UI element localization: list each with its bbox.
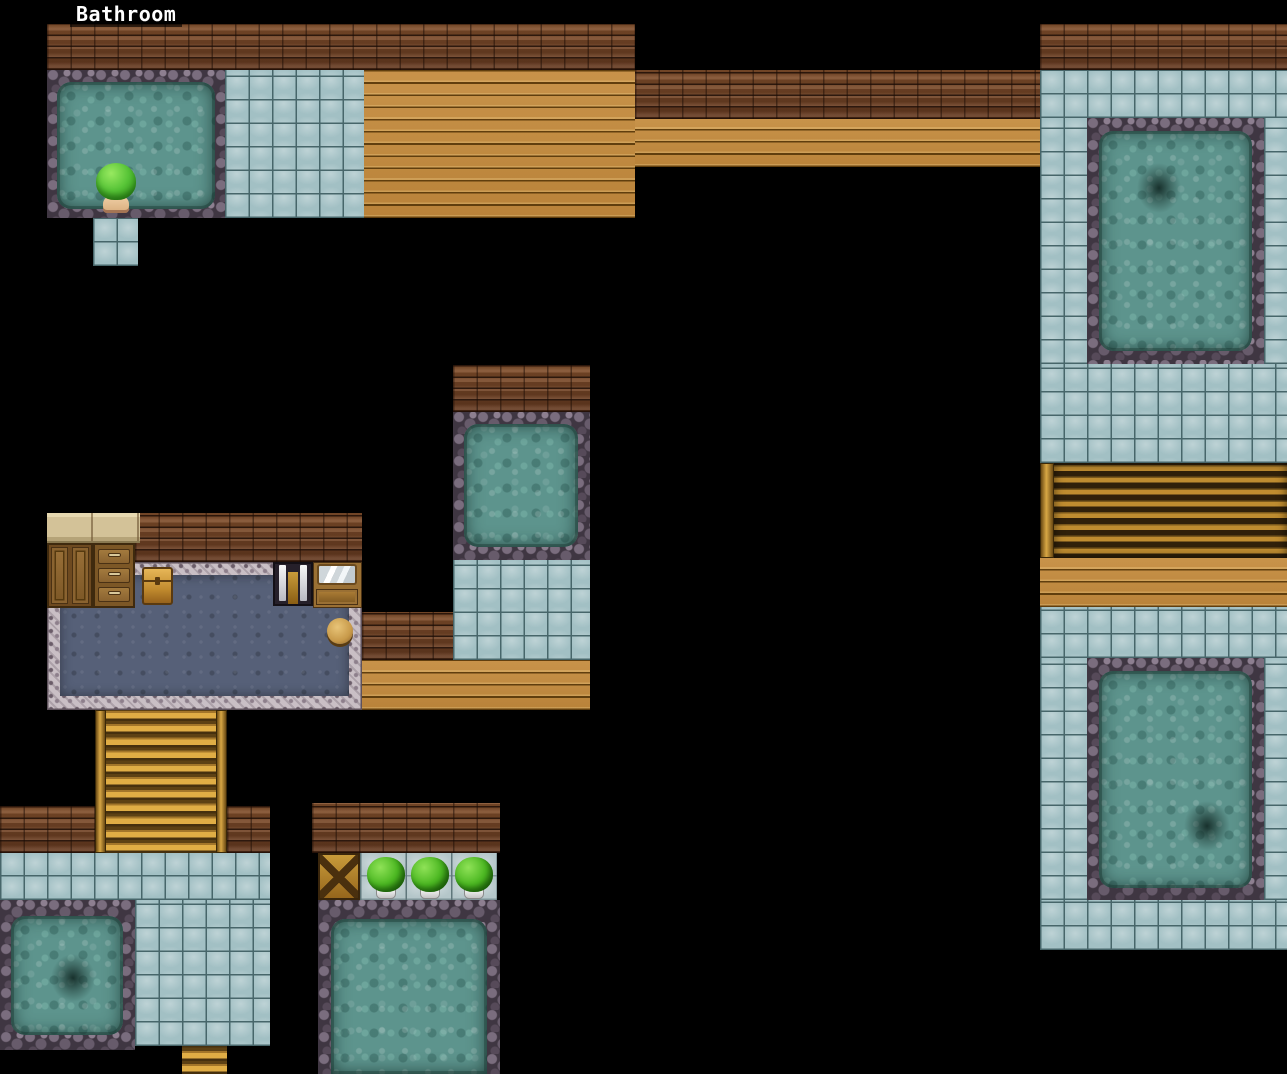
- tile-floor-bottom-left-right: [135, 900, 270, 1046]
- drain-shadow: [1184, 801, 1230, 851]
- wooden-chest: [142, 567, 173, 605]
- round-stool: [327, 618, 353, 644]
- wood-floor-top-left: [364, 70, 635, 218]
- game-viewport[interactable]: Bathroom: [0, 0, 1287, 1074]
- brick-wall-bottom-middle: [312, 803, 500, 853]
- wardrobe: [47, 543, 93, 608]
- bush: [366, 856, 406, 900]
- brick-wall-center: [453, 365, 590, 412]
- tile-floor-right-pool2-left: [1040, 658, 1087, 900]
- tile-floor-right-pool1-right: [1264, 118, 1287, 364]
- bush: [410, 856, 450, 900]
- brick-wall-bottom-left-2: [227, 806, 270, 853]
- counter-top: [47, 513, 140, 543]
- pool-bottomleft-water: [11, 916, 123, 1035]
- dresser-drawer: [98, 587, 130, 602]
- stair-rail-right: [216, 710, 227, 853]
- bush-foliage: [411, 857, 449, 892]
- brick-wall-dressing-room: [135, 513, 362, 562]
- drawer-handle: [108, 572, 121, 576]
- brick-wall-corridor: [635, 70, 1040, 119]
- brick-wall-center-lower: [362, 612, 453, 660]
- wood-pile: [318, 853, 360, 900]
- bush: [454, 856, 494, 900]
- stairs-right-rail: [1040, 463, 1054, 558]
- chest-clasp: [155, 577, 160, 585]
- staircase-down: [95, 710, 227, 853]
- bush-foliage: [367, 857, 405, 892]
- tile-floor-right-bottom: [1040, 900, 1287, 950]
- wardrobe-door-right: [72, 547, 89, 604]
- drawer-handle: [108, 591, 121, 595]
- pool-center-water: [464, 424, 578, 547]
- brick-wall-right: [1040, 24, 1287, 70]
- wood-landing-right: [1040, 558, 1287, 607]
- tile-stub-below-pool: [93, 218, 138, 266]
- towel-locker: [273, 562, 313, 606]
- hanging-towel: [300, 565, 307, 601]
- tile-floor-right-pool1-left: [1040, 118, 1087, 364]
- pool-bottommiddle-water: [331, 919, 487, 1074]
- tile-floor-top-left: [225, 70, 364, 218]
- hanging-towel: [279, 565, 286, 601]
- wood-corridor: [635, 119, 1040, 167]
- pool-right-lower-water: [1099, 671, 1252, 888]
- drawer-handle: [108, 553, 121, 557]
- location-label: Bathroom: [70, 1, 182, 27]
- bush-foliage: [455, 857, 493, 892]
- vanity-table: [313, 562, 362, 608]
- tile-floor-right-middle: [1040, 364, 1287, 463]
- dresser-drawer: [98, 568, 130, 583]
- player-hair: [96, 163, 136, 200]
- tile-floor-right-top: [1040, 70, 1287, 118]
- dresser: [93, 543, 135, 608]
- brick-wall-top-left: [47, 24, 635, 70]
- dresser-drawer: [98, 549, 130, 564]
- player-character: [95, 158, 137, 216]
- brick-wall-bottom-left: [0, 806, 95, 853]
- locker-gold-interior: [288, 572, 298, 604]
- stair-rail-left: [95, 710, 106, 853]
- tile-floor-right-lower: [1040, 607, 1287, 658]
- tile-floor-center: [453, 560, 590, 660]
- pool-right-upper-water: [1099, 131, 1252, 351]
- wardrobe-door-left: [51, 547, 68, 604]
- vanity-drawers: [316, 589, 358, 605]
- tile-floor-right-pool2-right: [1264, 658, 1287, 900]
- tile-floor-bottom-left-top: [0, 853, 270, 900]
- stairs-right-descending: [1054, 463, 1287, 558]
- stair-stub-bottom: [182, 1046, 227, 1074]
- wood-corridor-center: [362, 660, 590, 710]
- drain-shadow: [51, 954, 95, 1002]
- drain-shadow: [1137, 163, 1181, 213]
- vanity-mirror: [317, 564, 357, 585]
